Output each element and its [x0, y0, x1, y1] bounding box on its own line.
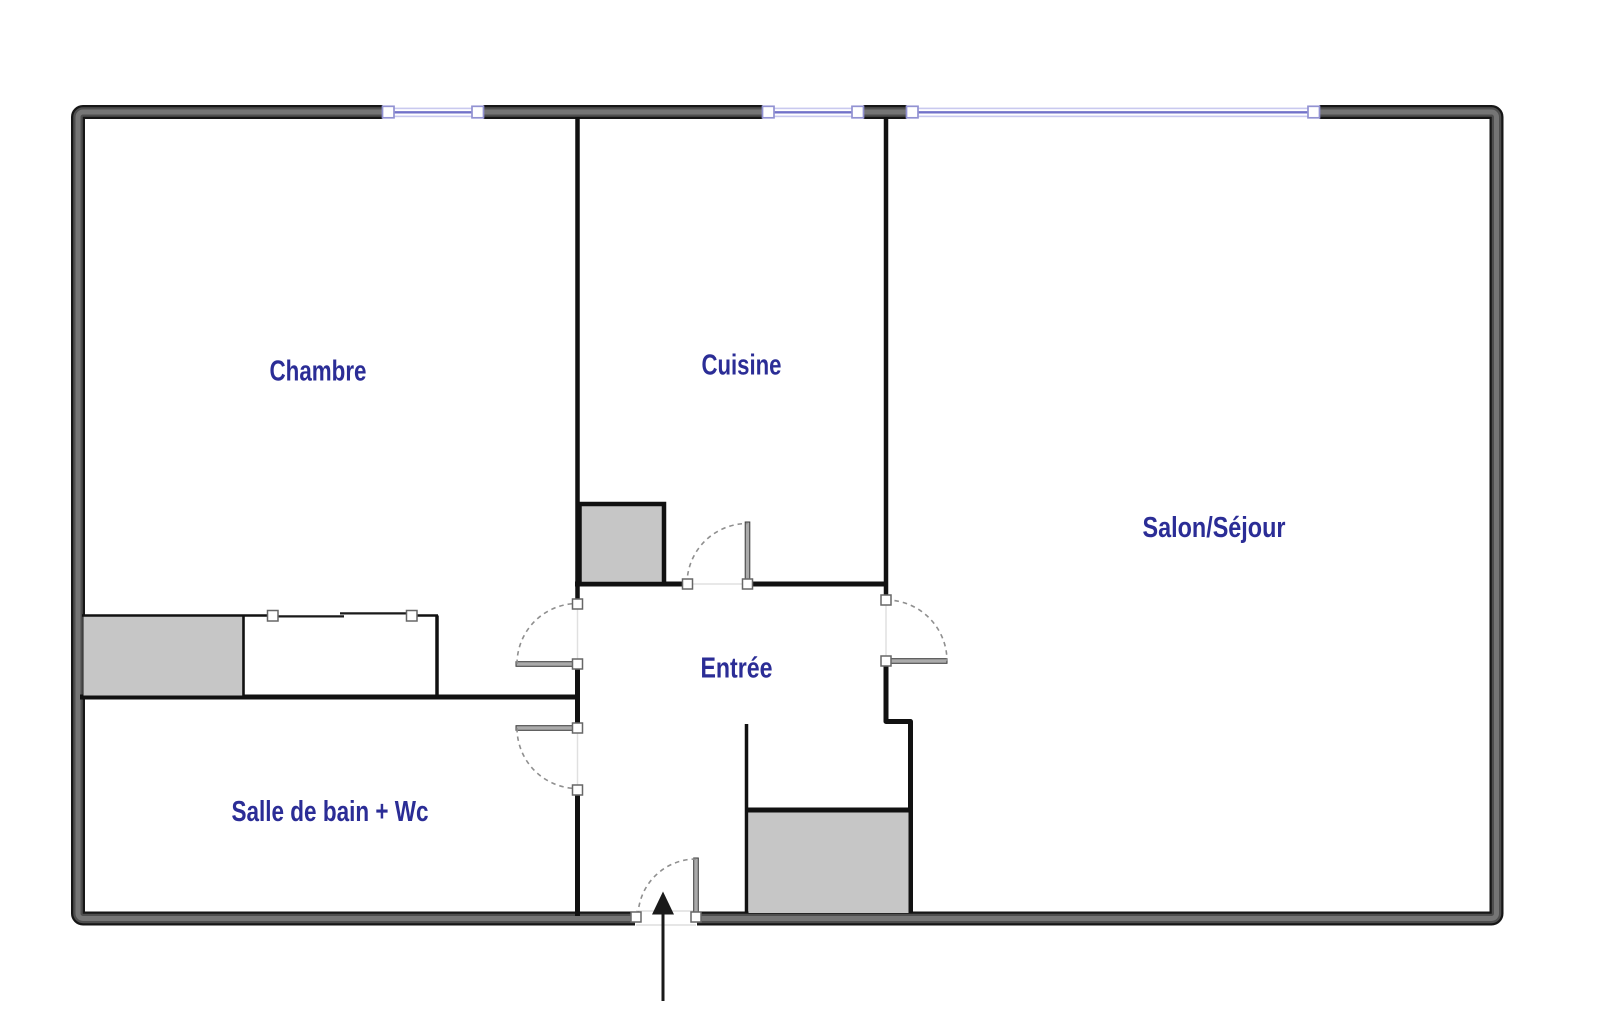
- svg-text:Salon/Séjour: Salon/Séjour: [1143, 512, 1286, 544]
- svg-text:Chambre: Chambre: [270, 356, 367, 388]
- svg-text:Salle de bain + Wc: Salle de bain + Wc: [232, 796, 429, 828]
- svg-text:Entrée: Entrée: [701, 653, 773, 685]
- svg-text:Cuisine: Cuisine: [702, 350, 782, 382]
